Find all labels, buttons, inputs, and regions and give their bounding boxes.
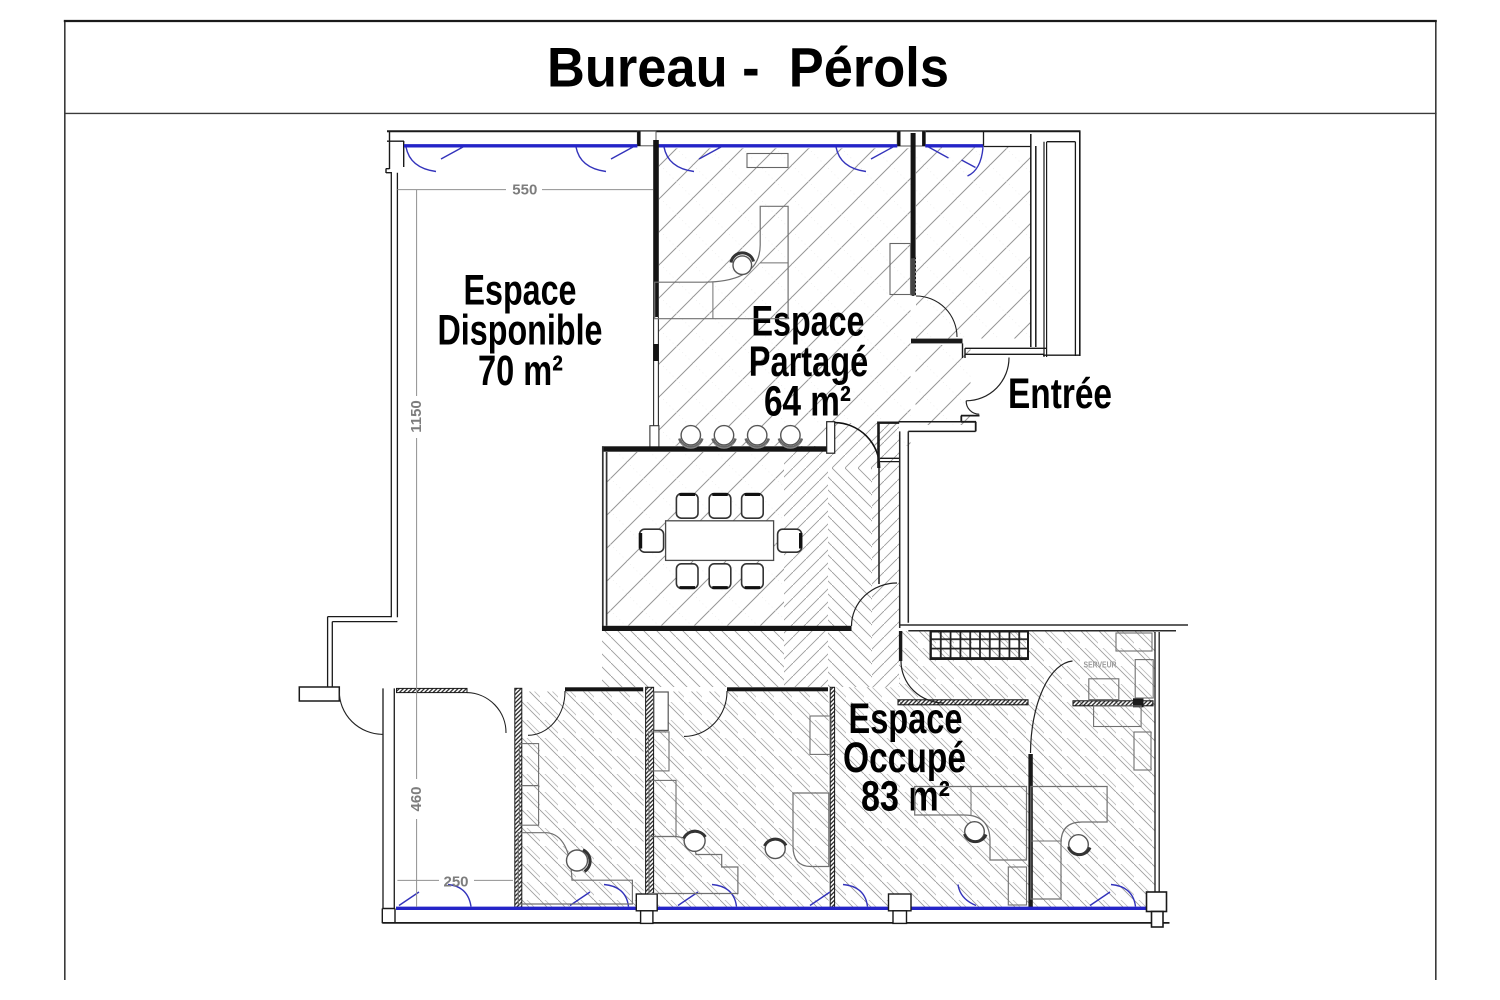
svg-text:Entrée: Entrée — [1008, 370, 1112, 418]
svg-text:70 m²: 70 m² — [478, 347, 563, 395]
svg-text:SERVEUR: SERVEUR — [1084, 661, 1117, 670]
svg-text:83 m²: 83 m² — [861, 773, 950, 821]
svg-text:Bureau - Pérols: Bureau - Pérols — [547, 37, 949, 99]
svg-text:460: 460 — [408, 786, 425, 811]
svg-text:550: 550 — [512, 182, 537, 199]
svg-text:1150: 1150 — [408, 400, 425, 433]
svg-text:64 m²: 64 m² — [764, 378, 851, 426]
svg-text:250: 250 — [443, 873, 468, 890]
